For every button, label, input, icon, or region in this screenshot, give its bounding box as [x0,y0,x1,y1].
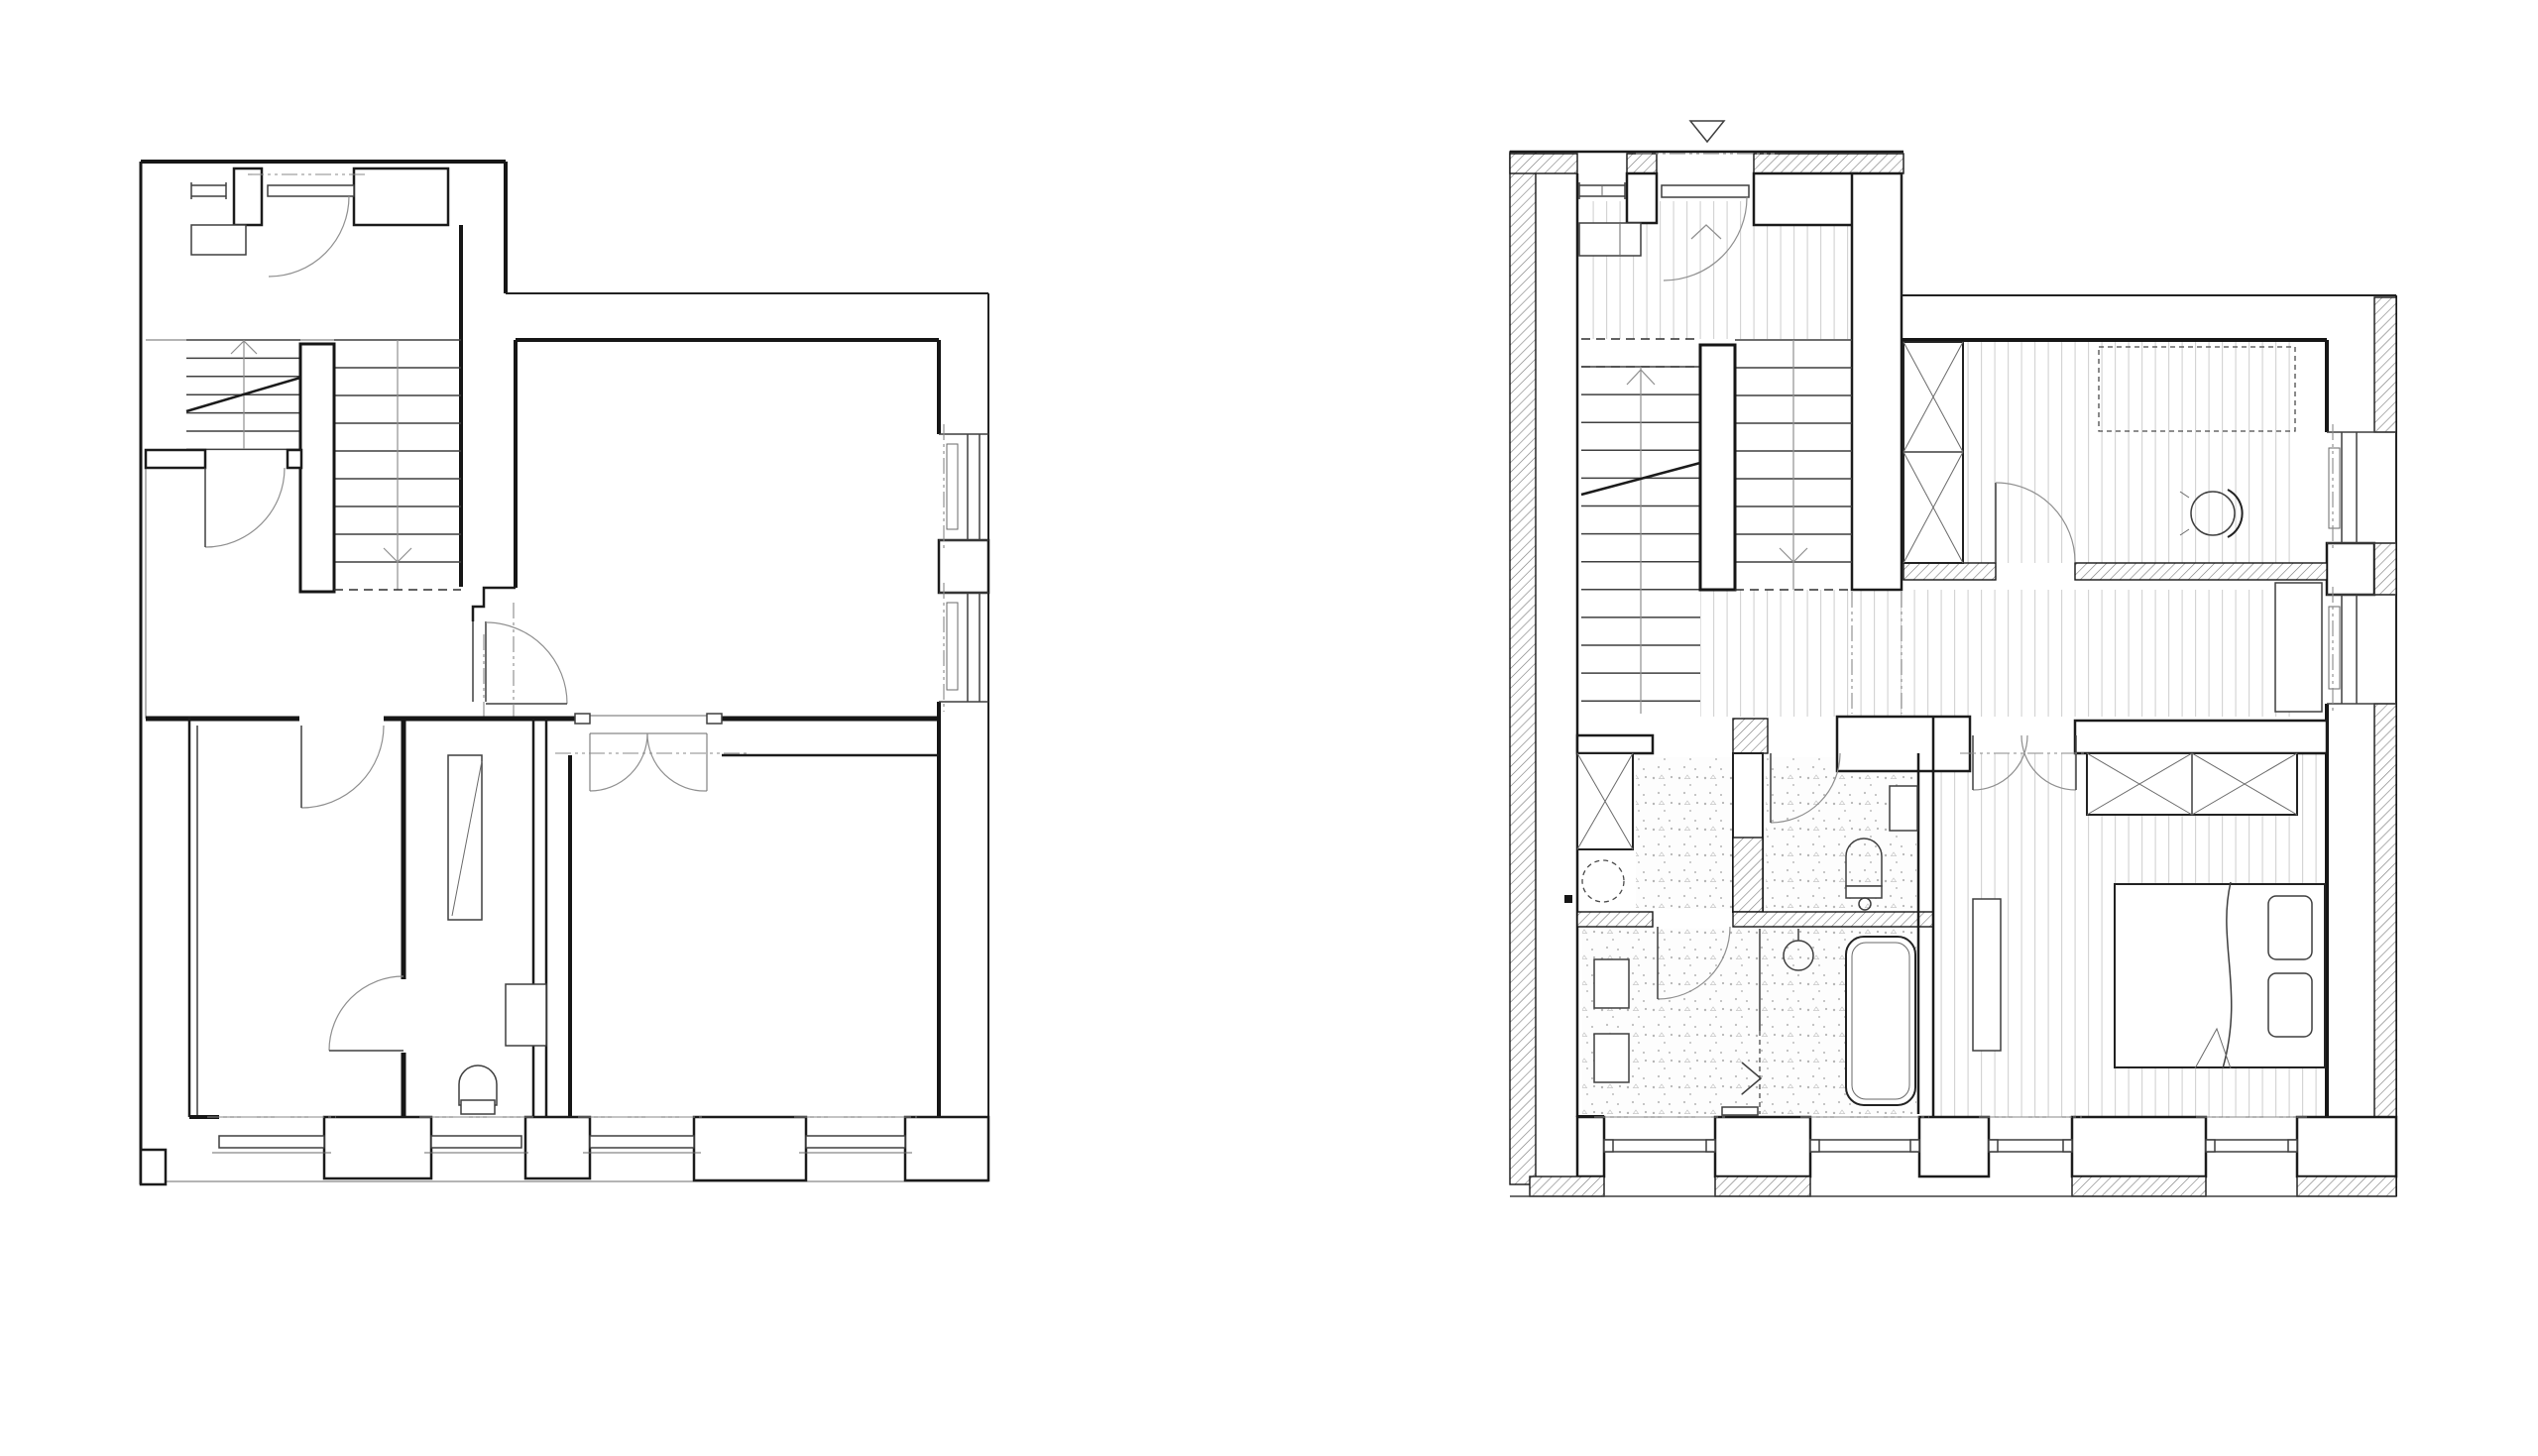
door-swing-arc [205,468,285,547]
door-swing-arc [486,622,567,704]
hall-cabinet [191,225,246,255]
window-frame-tick [2063,1140,2072,1152]
desk [1973,899,2001,1051]
window-frame [1604,1140,1715,1152]
corner-footing [141,1150,166,1184]
entry-pier [234,168,262,225]
window-frame-tick [2288,1140,2297,1152]
bedroom1-floor [1963,342,2297,563]
wall-block [1837,717,1970,771]
window-pier [324,1117,431,1178]
wc-floor [1766,757,1916,909]
window-pier [905,1117,988,1180]
footing-hatch [1715,1176,1810,1196]
window-pier [939,540,988,593]
door-jamb-block [575,714,590,724]
exterior-wall-top-segment [1627,154,1657,173]
window-pier [694,1117,806,1180]
door-jamb-block [707,714,722,724]
wall-pier [1733,719,1768,753]
entry-pier [1627,173,1657,223]
window-frame-tick [1604,1140,1613,1152]
window-frame-tick [2206,1140,2215,1152]
entry-door-leaf [268,185,354,196]
toilet-bowl [459,1065,497,1105]
toilet-tank [1846,886,1882,898]
window-pier [1919,1117,1989,1176]
exterior-wall-right [2374,543,2396,595]
pillow [2268,973,2312,1037]
stair-newel-wall [1700,345,1735,590]
sink [1890,786,1917,831]
bedroom1-bottom-wall [1903,563,1996,580]
window-frame [431,1136,521,1148]
wall-band [1754,173,1857,225]
bathtub [1846,937,1915,1105]
footing-hatch [2297,1176,2396,1196]
partition-wall-tiled [1733,838,1763,912]
pillow [2268,896,2312,959]
toilet-tank [461,1100,495,1114]
bedroom2-top-wall [2075,721,2327,753]
bench [1722,1107,1758,1115]
french-door-arc [590,733,647,791]
window-pier [2072,1117,2206,1176]
window-pier [1715,1117,1810,1176]
footing-hatch [2072,1176,2206,1196]
window-frame [1810,1140,1919,1152]
window-frame-tick [1810,1140,1819,1152]
laundry-top-wall [1577,735,1653,753]
radiator [2275,583,2322,712]
corner-wall-block [1577,1117,1604,1176]
window-casement [2329,448,2340,528]
entry-marker-triangle [1690,121,1724,142]
window-frame [806,1136,905,1148]
desk [506,984,546,1046]
understair-wall [288,450,301,468]
window-casement [947,603,958,690]
bath-cabinet [1594,1034,1629,1082]
window-pier [2327,543,2374,595]
door-swing-arc [329,976,404,1051]
window-casement [2329,607,2340,689]
corridor-floor [1700,590,2297,717]
window-frame [1989,1140,2072,1152]
entry-door-leaf [1662,185,1749,197]
window-frame [219,1136,324,1148]
window-frame-tick [1706,1140,1715,1152]
window-pier [2297,1117,2396,1176]
bath-bottom-wall [1577,912,1653,927]
tall-cabinet [448,755,482,920]
wall-step [473,588,516,621]
entry-door-arc [269,196,349,277]
exterior-wall-left [1510,152,1536,1184]
window-pier [525,1117,590,1178]
top-wall-block [354,168,448,225]
bath-bottom-wall [1733,912,1933,927]
window-frame-tick [1910,1140,1919,1152]
exterior-wall-right [2374,704,2396,1176]
window-casement [947,444,958,529]
hall-cabinet [1579,223,1641,256]
floor-plan-canvas [0,0,2538,1456]
stair-bedroom-wall [1852,173,1902,590]
bedroom1-bottom-wall [2075,563,2327,580]
window-frame-tick [1989,1140,1998,1152]
footing-hatch [1530,1176,1604,1196]
washing-machine [1582,860,1624,902]
stair-newel-wall [300,344,334,592]
ground-floor-plan [141,162,988,1184]
exterior-wall-right [2374,297,2396,432]
floorplan-drawing [0,0,2538,1456]
french-door-arc [647,733,707,791]
window-frame [2206,1140,2297,1152]
door-swing-arc [301,726,384,808]
window-frame [590,1136,694,1148]
understair-wall [146,450,205,468]
exterior-wall-top-segment [1754,154,1903,173]
exterior-wall-top-segment [1510,154,1577,173]
bath-cabinet [1594,959,1629,1008]
laundry-floor [1636,757,1733,909]
upper-floor-plan [1510,121,2396,1196]
door-handle [1564,895,1572,903]
